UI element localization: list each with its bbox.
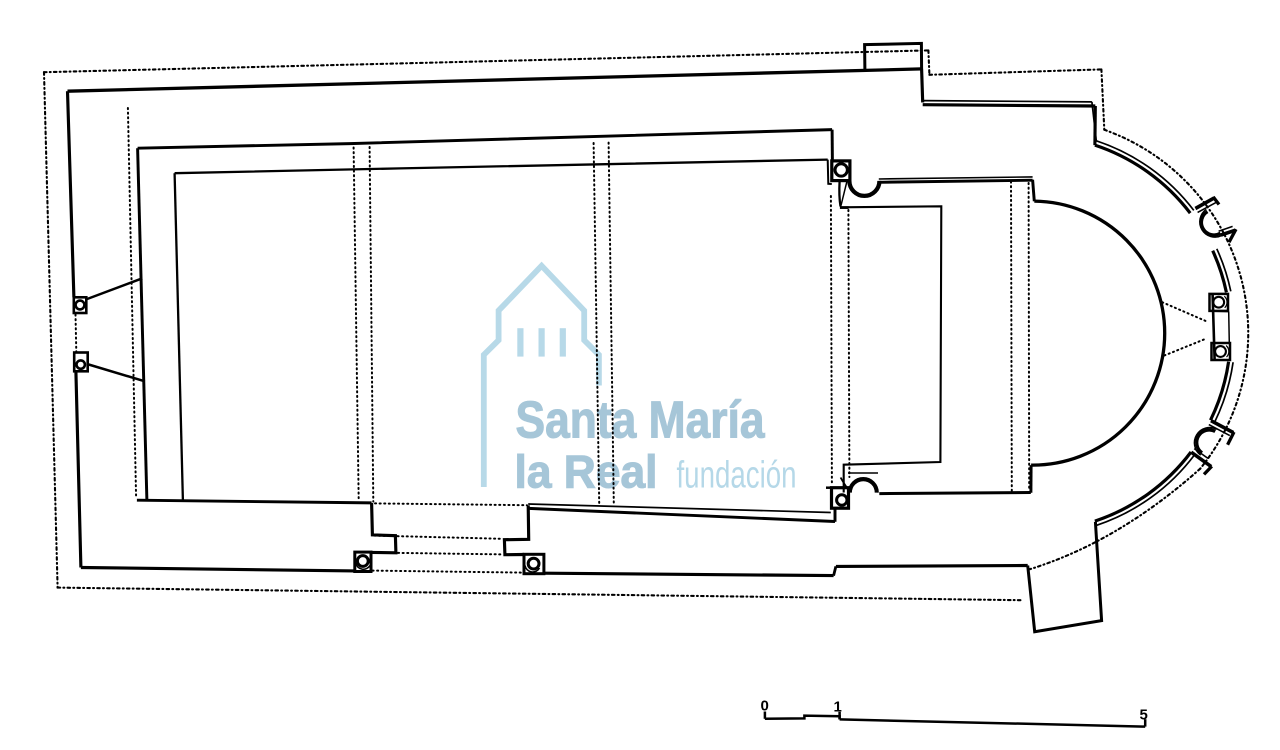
svg-text:0: 0 [761, 698, 769, 715]
svg-text:la Real: la Real [515, 446, 658, 498]
svg-text:1: 1 [834, 699, 842, 716]
svg-text:fundación: fundación [677, 455, 797, 497]
svg-text:5: 5 [1140, 707, 1148, 724]
svg-text:Santa María: Santa María [516, 392, 766, 450]
